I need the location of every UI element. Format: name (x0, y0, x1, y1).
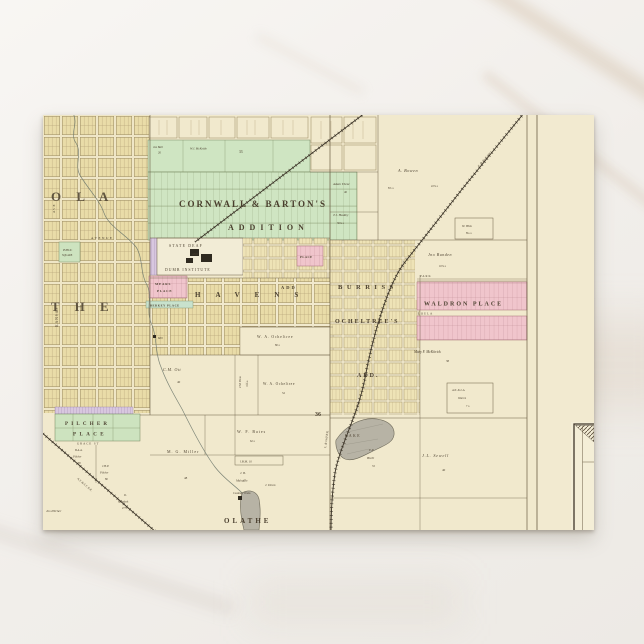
jbm-label: J.B.M. 10 (240, 459, 252, 463)
parcel-warren-line1: A.N. & L.A. (451, 389, 466, 392)
mears-line2: PLACE (157, 289, 173, 293)
parcel-hadley-acres: 36¼ a (337, 222, 345, 225)
parcel-bates-acres: 62 a (250, 440, 255, 443)
parcel-ott: C.M. Ott (163, 367, 182, 372)
parcel-ocheltree80: W. A. Ocheltree (257, 335, 293, 339)
street-kansas: KANSAS (55, 307, 59, 327)
waldron-place-blocks (417, 279, 527, 340)
havens-add: ADD (281, 285, 297, 290)
creamery-label: Creamery Works (233, 492, 251, 495)
parcel-murdock-acres: 27½ a (122, 507, 130, 510)
institute-line1: STATE DEAF (169, 244, 203, 248)
street-grace: GRACE ST (77, 442, 99, 446)
mill-building (153, 335, 156, 338)
institute-line3: DUMB INSTITUTE (165, 268, 211, 272)
berkey-label: BERKEY PLACE (150, 303, 180, 307)
ochelt-add-title2: ADD. (357, 373, 380, 379)
parcel-mahaffie-line1: J. B. (240, 471, 246, 475)
parcel-baa-line1: B.A.A. (75, 448, 83, 452)
pilcher-line2: PLACE (73, 433, 107, 438)
parcel-bunden-acres: 10⅞ a (439, 265, 447, 268)
cornwall-addition: ADDITION (228, 223, 309, 232)
ocheltree-80-strip (240, 327, 333, 355)
parcel-thesz: Adam Thesz (332, 182, 350, 186)
parcel-warren-line2: Warren (458, 397, 467, 400)
cornwall-title: CORNWALL & BARTON'S (179, 199, 327, 209)
lilac-strip-hatch (55, 407, 133, 414)
ocheltree-add-blocks (330, 300, 420, 415)
institute-line2: AND (192, 253, 198, 256)
street-avenue: AVENUE (91, 236, 114, 240)
parcel-baa-line2: Pilcher (72, 455, 82, 459)
parcel-jos-pilcher: Jos Pilcher (46, 509, 62, 513)
parcel-mahaffie-line2: Mahaffie (235, 479, 248, 483)
lilac-hatch (150, 238, 157, 275)
burriss-letters: BURRISS (338, 284, 398, 291)
parcel-miller: M. G. Miller (167, 449, 199, 454)
creamery-building (238, 496, 242, 500)
parcel-bates: W. F. Bates (237, 429, 266, 434)
parcel-sewell: J.L. Sewell (422, 453, 449, 458)
plat-map: O L A T H E KANSAS AVE AVENUE PUBLIC SQU… (43, 115, 594, 530)
public-square (59, 242, 80, 262)
marble-vein (439, 0, 644, 124)
parcel-ocheltree80-acres: 80 a (275, 344, 280, 347)
public-square-label2: SQUARE (62, 254, 73, 257)
parcel-hisk: W. Hisk (462, 224, 472, 228)
parcel-mckettle-acres: 33 (239, 150, 243, 154)
ochelt-add-title1: OCHELTREE'S (335, 319, 399, 325)
marble-vein (255, 32, 365, 95)
parcel-murdock-line1: D. (123, 493, 127, 497)
parcel-ott-acres: 40 (177, 380, 181, 384)
marble-vein (250, 580, 460, 624)
street-ave: AVE (52, 203, 56, 213)
postcard: O L A T H E KANSAS AVE AVENUE PUBLIC SQU… (43, 115, 594, 530)
parcel-mckettle: W.J. McKettle (190, 147, 207, 151)
parcel-bowen-a2: 22⅞ a (431, 185, 439, 188)
parcel-jhp-line1: J.H.P. (102, 464, 109, 468)
parcel-bowen-a1: 8⅞ a (388, 187, 394, 190)
parcel-bowen: A. Bowen (397, 168, 418, 173)
parcel-dow: J.M. Dow (238, 376, 242, 388)
burriss-add-blocks (330, 240, 415, 300)
parcel-miller-acres: 48 (184, 476, 188, 480)
lake-label: LAKE (345, 434, 361, 438)
marble-vein (0, 517, 235, 615)
parcel-ocheltree52-acres: 52 (282, 391, 286, 395)
parcel-dow-acres: 10¾ a (246, 380, 249, 387)
parcel-jas-ball-acres: 20 (158, 151, 162, 155)
mears-line1: MEARS (155, 282, 171, 286)
south-city-blocks (150, 327, 240, 355)
waldron-title: WALDRON PLACE (424, 302, 503, 308)
original-town-grid (43, 115, 150, 413)
havens-letters: HAVENS (195, 291, 313, 299)
parcel-hisk-acres: 8¼ a (466, 232, 472, 235)
pilcher-line1: PILCHER (65, 422, 110, 427)
street-park: PARK (420, 274, 432, 278)
town-letters-row2: T H E (51, 299, 115, 314)
parcel-bichl-line1: E.P. (368, 448, 374, 452)
parcel-sewell-acres: 40 (442, 468, 446, 472)
mill-label: Mill (157, 337, 163, 340)
marble-background: O L A T H E KANSAS AVE AVENUE PUBLIC SQU… (0, 0, 644, 644)
inset-map-corner (571, 422, 594, 530)
parcel-thesz-acres: 40 (344, 190, 348, 194)
parcel-mckitrick-acres: 38 (446, 359, 450, 363)
parcel-murdock-line2: Murdock (117, 500, 129, 504)
town-letters-row1: O L A (51, 189, 114, 204)
parcel-drum: J. Drum (265, 483, 276, 487)
olathe-city-label: OLATHE (224, 517, 271, 525)
mears-place-hatch (149, 276, 187, 298)
public-square-label1: PUBLIC (63, 249, 72, 252)
parcel-hadley: T.J. Hadley (333, 213, 349, 217)
parcel-mckitrick: Mary F. McKitrick (413, 350, 441, 354)
parcel-bunden: Jno Bunden (428, 252, 452, 257)
section-36: 36 (315, 412, 321, 418)
place-block-label: PLACE (300, 255, 313, 259)
parcel-jas-ball: Jas Ball (153, 145, 163, 149)
parcel-jhp-line2: Pilcher (99, 471, 109, 475)
street-loula: LOULA (418, 312, 433, 316)
parcel-bichl-line2: Bichl (367, 456, 374, 460)
parcel-ocheltree52: W. A. Ocheltree (263, 382, 295, 386)
